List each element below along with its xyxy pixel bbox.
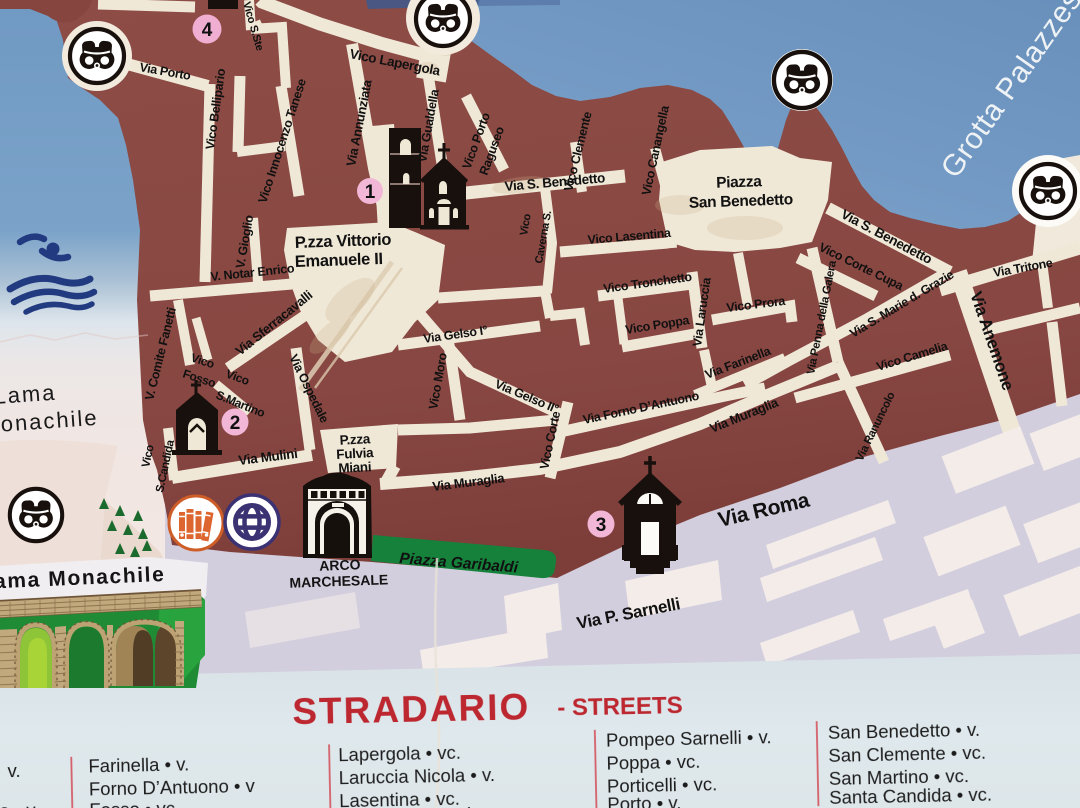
svg-text:P.zza Vittorio: P.zza Vittorio [295,231,392,252]
svg-text:4: 4 [202,20,213,41]
svg-text:3: 3 [596,515,607,536]
svg-text:v.: v. [7,760,20,781]
svg-text:San Clemente • vc.: San Clemente • vc. [828,742,986,766]
svg-text:Lama: Lama [0,380,57,409]
svg-text:Poppa • vc.: Poppa • vc. [606,751,700,774]
svg-text:Miani: Miani [338,459,372,476]
svg-text:Fosso • vc.: Fosso • vc. [89,798,180,808]
svg-text:Forno D’Antuono • v: Forno D’Antuono • v [89,775,256,799]
svg-text:San Benedetto: San Benedetto [689,191,793,212]
svg-text:Lapergola • vc.: Lapergola • vc. [338,742,461,766]
svg-text:Piazza: Piazza [716,173,763,192]
svg-text:io • v.: io • v. [0,800,40,808]
svg-text:Pompeo Sarnelli • v.: Pompeo Sarnelli • v. [606,726,772,750]
svg-text:ARCO: ARCO [319,556,361,573]
svg-text:Porto • v.: Porto • v. [607,792,681,808]
svg-text:Emanuele II: Emanuele II [295,250,383,271]
svg-text:Farinella • v.: Farinella • v. [88,753,189,776]
svg-text:STRADARIO: STRADARIO [292,686,531,732]
svg-text:- STREETS: - STREETS [557,692,683,722]
svg-text:San Benedetto • v.: San Benedetto • v. [828,719,981,743]
svg-text:1: 1 [365,182,376,203]
svg-text:Santa Candida • vc.: Santa Candida • vc. [829,784,992,808]
svg-text:Laruccia Nicola • v.: Laruccia Nicola • v. [339,764,496,788]
svg-text:2: 2 [230,413,241,434]
